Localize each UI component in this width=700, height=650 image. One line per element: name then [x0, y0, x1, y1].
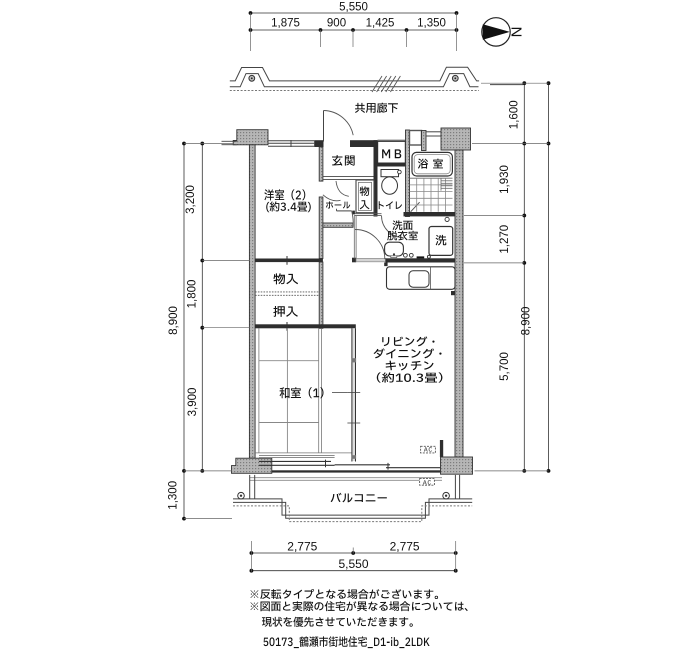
svg-text:2,775: 2,775	[287, 539, 317, 553]
svg-text:1,425: 1,425	[366, 18, 395, 30]
svg-text:3,200: 3,200	[185, 185, 197, 214]
svg-text:900: 900	[327, 18, 346, 30]
svg-text:1,350: 1,350	[417, 18, 446, 30]
svg-text:3,900: 3,900	[187, 388, 199, 417]
svg-text:1,875: 1,875	[271, 18, 300, 30]
svg-text:5,700: 5,700	[499, 352, 511, 381]
svg-text:5,550: 5,550	[338, 557, 368, 571]
svg-text:5,550: 5,550	[339, 1, 368, 13]
svg-text:1,600: 1,600	[509, 100, 521, 129]
svg-text:1,800: 1,800	[186, 280, 198, 309]
svg-text:2,775: 2,775	[390, 539, 420, 553]
svg-text:1,270: 1,270	[499, 225, 511, 254]
svg-text:1,300: 1,300	[168, 481, 180, 510]
svg-text:8,900: 8,900	[521, 307, 533, 336]
svg-text:N: N	[508, 26, 525, 37]
svg-text:1,930: 1,930	[499, 165, 511, 194]
svg-text:8,900: 8,900	[168, 306, 180, 335]
